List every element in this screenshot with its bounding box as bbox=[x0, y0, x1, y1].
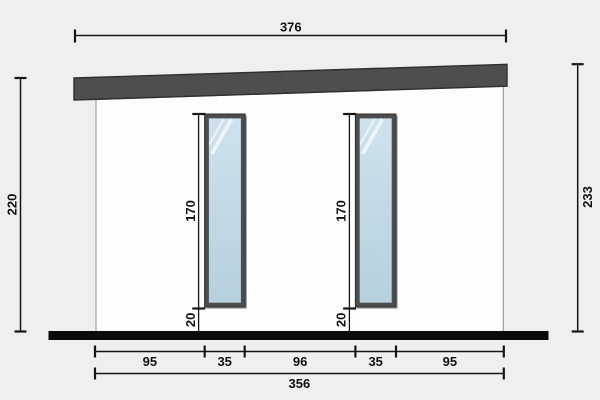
svg-text:20: 20 bbox=[183, 313, 198, 327]
svg-text:170: 170 bbox=[334, 200, 349, 222]
svg-text:233: 233 bbox=[580, 186, 595, 208]
svg-text:96: 96 bbox=[293, 354, 307, 369]
svg-text:170: 170 bbox=[183, 200, 198, 222]
svg-text:376: 376 bbox=[280, 19, 302, 34]
svg-text:356: 356 bbox=[289, 376, 311, 391]
svg-text:95: 95 bbox=[143, 354, 157, 369]
svg-text:35: 35 bbox=[217, 354, 231, 369]
svg-text:20: 20 bbox=[334, 313, 349, 327]
svg-text:35: 35 bbox=[368, 354, 382, 369]
svg-text:220: 220 bbox=[5, 194, 20, 216]
svg-text:95: 95 bbox=[443, 354, 457, 369]
